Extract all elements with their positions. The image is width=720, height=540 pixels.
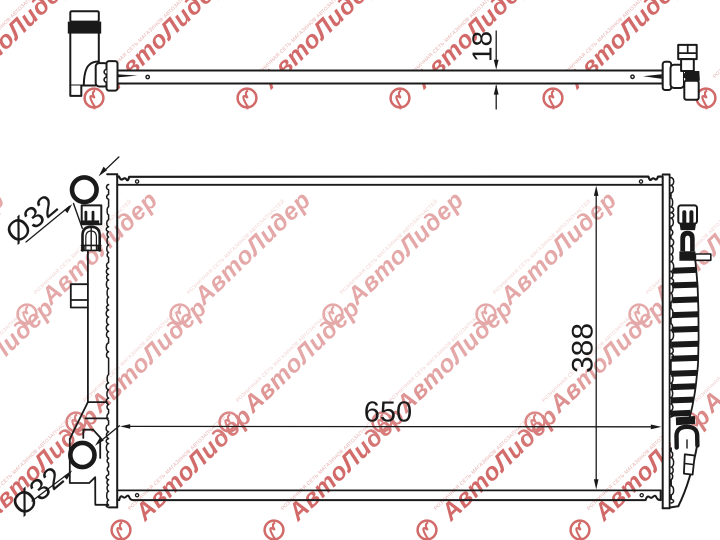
svg-text:18: 18 <box>467 31 498 62</box>
svg-text:650: 650 <box>364 397 412 429</box>
svg-text:388: 388 <box>567 323 600 373</box>
